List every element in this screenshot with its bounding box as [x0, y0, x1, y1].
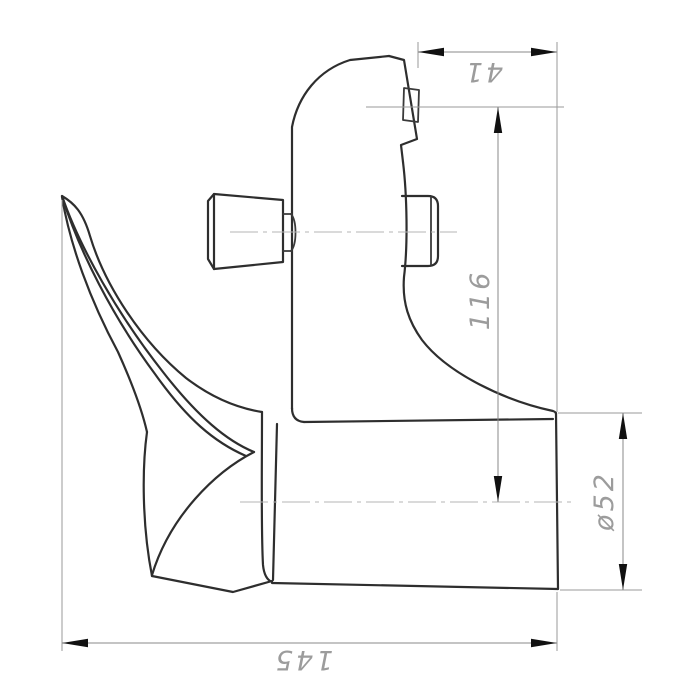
- barrel-top-edge: [304, 419, 553, 422]
- main-body: [292, 56, 556, 422]
- spout-front-edge: [144, 432, 152, 576]
- handle-crease-a: [62, 196, 254, 452]
- lever-handle: [62, 196, 262, 456]
- arrowhead-left: [418, 48, 444, 56]
- arrowhead-right: [531, 48, 557, 56]
- technical-drawing: 41 116 ø52 145: [0, 0, 700, 700]
- barrel-right-edge: [556, 413, 558, 589]
- dimension-label-41: 41: [463, 56, 503, 87]
- arrowhead-down: [494, 476, 502, 502]
- arrowhead-up: [494, 107, 502, 133]
- body-left-corner: [292, 408, 304, 422]
- dimension-body-height: 116: [366, 107, 564, 502]
- outlet-barrel: [272, 413, 558, 589]
- barrel-bottom-edge: [272, 583, 558, 589]
- spout-inner-crease: [152, 452, 254, 575]
- spout-bottom-edge: [152, 576, 272, 592]
- dimension-label-145: 145: [273, 644, 334, 675]
- arrowhead-up: [619, 413, 627, 439]
- arrowhead-left: [62, 639, 88, 647]
- canvas: 41 116 ø52 145: [0, 0, 700, 700]
- spout-rear-edge: [262, 412, 272, 582]
- arrowhead-down: [619, 564, 627, 590]
- dimension-label-diameter-52: ø52: [589, 471, 620, 532]
- centerlines: [230, 232, 576, 502]
- arrowhead-right: [531, 639, 557, 647]
- handle-top-edge: [62, 196, 262, 412]
- dimension-label-116: 116: [465, 270, 496, 331]
